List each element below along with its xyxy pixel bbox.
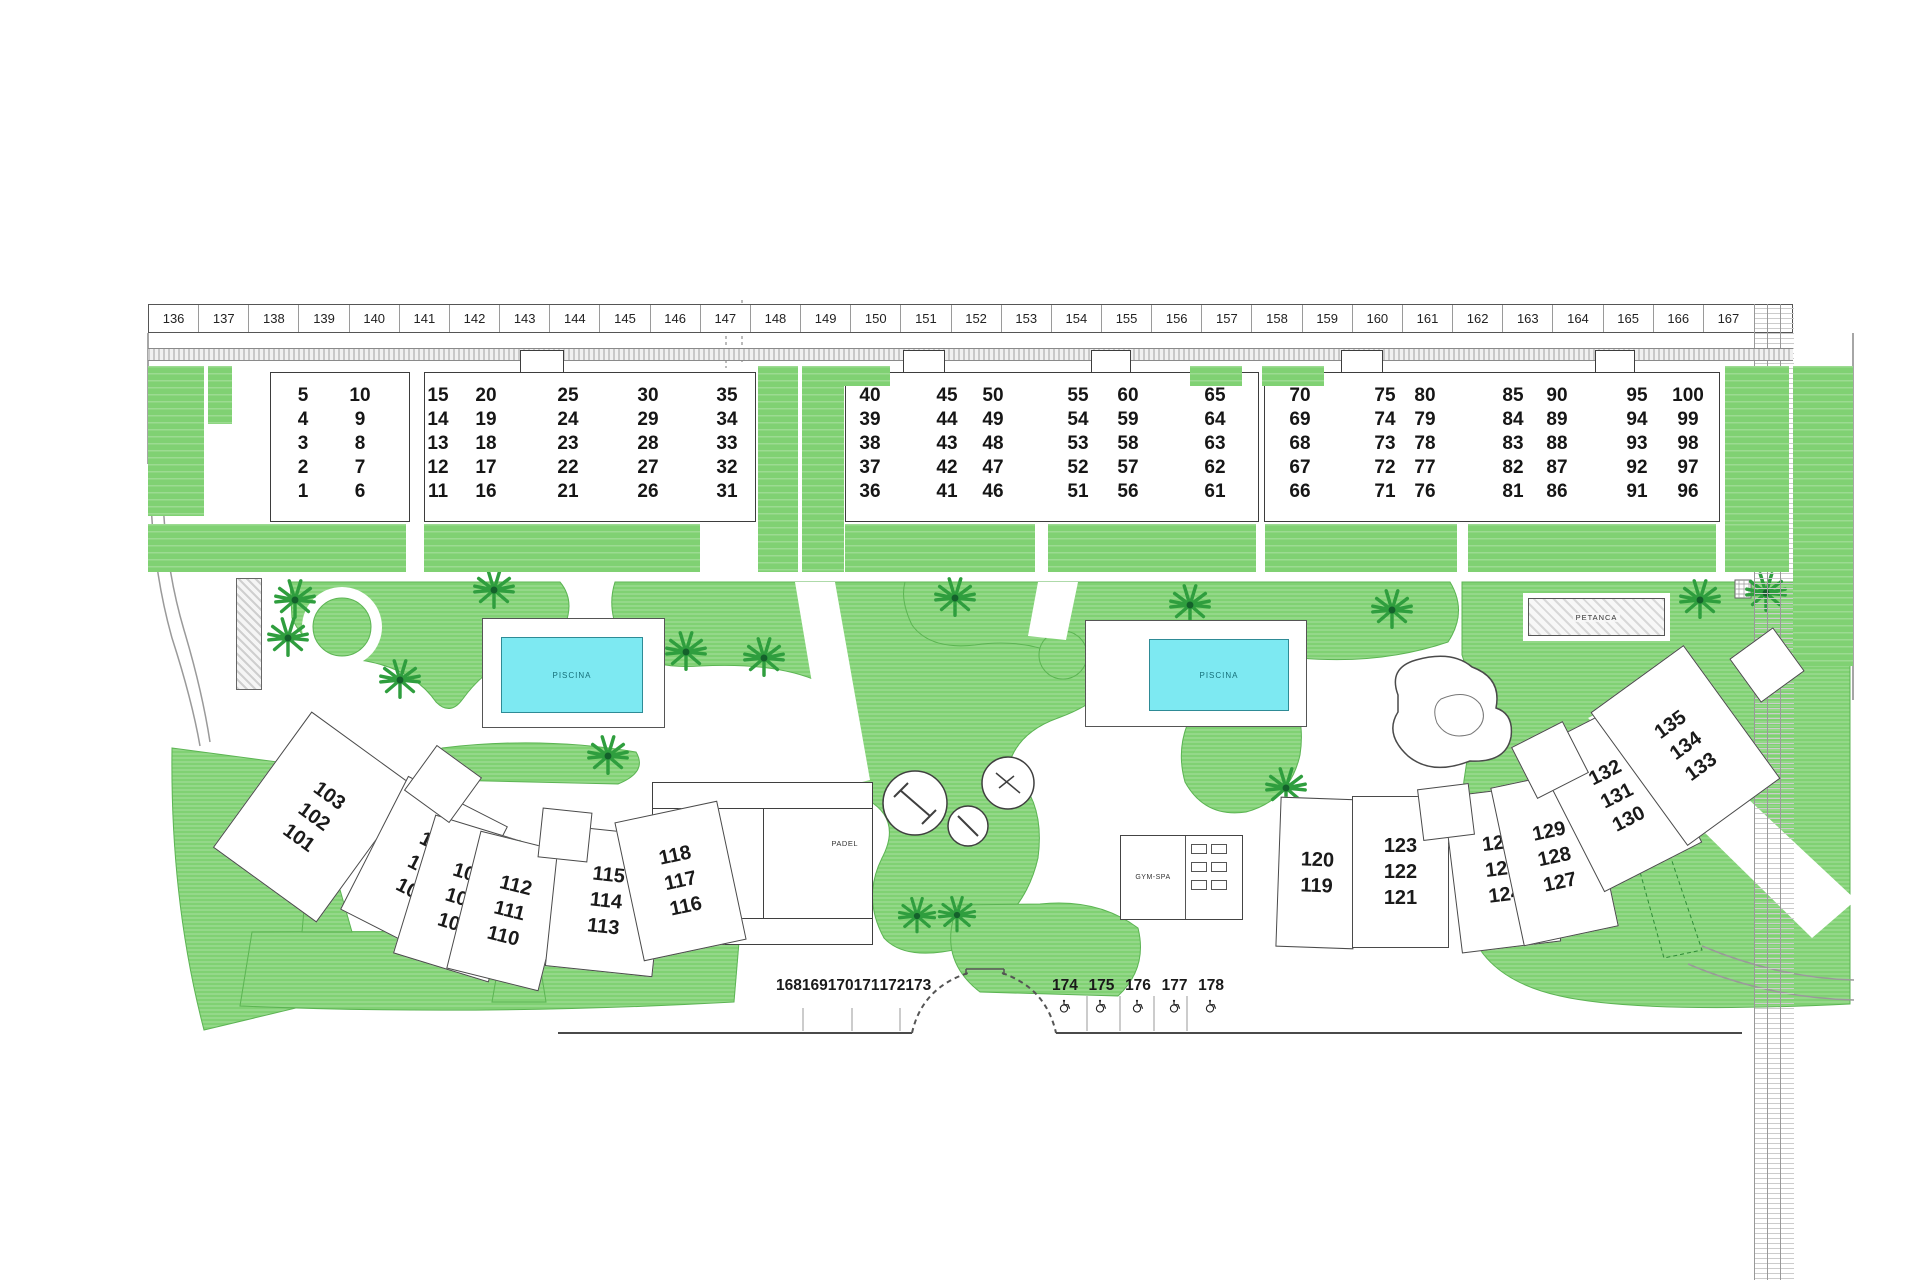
parking-space-number: 176 — [1125, 977, 1151, 995]
parking-space: 165 — [1603, 305, 1653, 332]
unit-numbers: 112 111 110 — [484, 869, 534, 952]
parking-space: 139 — [298, 305, 348, 332]
wall-divider — [1185, 836, 1186, 919]
gym-spa-building: GYM-SPA — [1120, 835, 1243, 920]
parking-space-number: 177 — [1162, 977, 1188, 995]
pool-deck-west: PISCINA — [482, 618, 665, 728]
ramp — [236, 578, 262, 690]
pool-east: PISCINA — [1149, 639, 1289, 711]
parking-space: 161 — [1402, 305, 1452, 332]
green-strip — [208, 366, 232, 424]
unit-stack-81-85: 85 84 83 82 81 — [1493, 384, 1533, 504]
wheelchair-icon — [1169, 999, 1181, 1013]
parking-space: 152 — [951, 305, 1001, 332]
unit-numbers: 118 117 116 — [657, 839, 705, 922]
unit-stack-6-10: 10 9 8 7 6 — [340, 384, 380, 504]
parking-space: 148 — [750, 305, 800, 332]
lounger-icon — [1211, 862, 1227, 872]
unit-stack-11-15: 15 14 13 12 11 — [418, 384, 458, 504]
wheelchair-icon — [1132, 999, 1144, 1013]
green-strip — [758, 366, 798, 572]
unit-stack-61-65: 65 64 63 62 61 — [1195, 384, 1235, 504]
parking-space: 136 — [149, 305, 198, 332]
unit-stack-76-80: 80 79 78 77 76 — [1405, 384, 1445, 504]
parking-space: 144 — [549, 305, 599, 332]
green-strip — [844, 366, 890, 386]
lounger-icon — [1211, 880, 1227, 890]
parking-space: 166 — [1653, 305, 1703, 332]
unit-stack-1-5: 5 4 3 2 1 — [283, 384, 323, 504]
parking-space: 146 — [650, 305, 700, 332]
accessible-parking-space: 177 — [1162, 977, 1188, 1013]
gravel-band — [148, 348, 1793, 361]
parking-space: 171 — [854, 977, 880, 995]
unit-stack-46-50: 50 49 48 47 46 — [973, 384, 1013, 504]
lounger-icon — [1191, 862, 1207, 872]
parking-space-number: 178 — [1198, 977, 1224, 995]
parking-space: 159 — [1302, 305, 1352, 332]
accessible-parking-space: 174 — [1052, 977, 1078, 1013]
unit-numbers: 123 122 121 — [1384, 833, 1417, 911]
green-strip — [424, 524, 700, 572]
petanca-court: PETANCA — [1528, 598, 1665, 636]
unit-stack-66-70: 70 69 68 67 66 — [1280, 384, 1320, 504]
parking-space: 170 — [828, 977, 854, 995]
parking-space: 143 — [499, 305, 549, 332]
parking-space: 162 — [1452, 305, 1502, 332]
unit-stack-31-35: 35 34 33 32 31 — [707, 384, 747, 504]
parking-space: 150 — [850, 305, 900, 332]
parking-space: 173 — [905, 977, 931, 995]
lounger-icon — [1191, 844, 1207, 854]
green-strip — [1793, 366, 1853, 666]
unit-stack-16-20: 20 19 18 17 16 — [466, 384, 506, 504]
parking-space: 156 — [1151, 305, 1201, 332]
parking-space: 151 — [900, 305, 950, 332]
pool-label: PISCINA — [552, 671, 591, 680]
building-119-120: 120 119 — [1275, 797, 1358, 950]
accessible-parking-space: 175 — [1089, 977, 1115, 1013]
parking-space: 141 — [399, 305, 449, 332]
green-strip — [148, 524, 406, 572]
parking-space: 155 — [1101, 305, 1151, 332]
parking-space: 140 — [349, 305, 399, 332]
wheelchair-icon — [1205, 999, 1217, 1013]
unit-numbers: 120 119 — [1299, 846, 1334, 899]
green-strip — [1468, 524, 1716, 572]
palm-tree-icon — [475, 571, 513, 607]
parking-space: 158 — [1251, 305, 1301, 332]
parking-space: 142 — [449, 305, 499, 332]
unit-numbers: 115 114 113 — [586, 861, 626, 942]
pool-deck-east: PISCINA — [1085, 620, 1307, 727]
green-strip — [802, 366, 844, 572]
unit-stack-91-95: 95 94 93 92 91 — [1617, 384, 1657, 504]
court-line — [763, 808, 764, 919]
parking-space-number: 175 — [1089, 977, 1115, 995]
pool-label: PISCINA — [1199, 671, 1238, 680]
garden-layer — [0, 0, 1920, 1280]
wheelchair-icon — [1059, 999, 1071, 1013]
parking-space: 149 — [800, 305, 850, 332]
parking-space: 145 — [599, 305, 649, 332]
accessible-parking-space: 178 — [1198, 977, 1224, 1013]
palm-tree-icon — [589, 737, 627, 773]
parking-space: 160 — [1352, 305, 1402, 332]
unit-stack-36-40: 40 39 38 37 36 — [850, 384, 890, 504]
annex — [1417, 783, 1475, 841]
parking-space: 169 — [802, 977, 828, 995]
unit-stack-96-100: 100 99 98 97 96 — [1668, 384, 1708, 504]
lounger-icon — [1211, 844, 1227, 854]
parking-space: 147 — [700, 305, 750, 332]
gym-label: GYM-SPA — [1121, 874, 1185, 881]
unit-stack-26-30: 30 29 28 27 26 — [628, 384, 668, 504]
green-strip — [1265, 524, 1457, 572]
wheelchair-icon — [1095, 999, 1107, 1013]
green-strip — [148, 366, 204, 516]
parking-space: 172 — [880, 977, 906, 995]
green-strip — [1262, 366, 1324, 386]
parking-space: 164 — [1552, 305, 1602, 332]
parking-space: 157 — [1201, 305, 1251, 332]
parking-space: 154 — [1051, 305, 1101, 332]
parking-space: 167 — [1703, 305, 1753, 332]
green-strip — [1048, 524, 1256, 572]
accessible-parking-space: 176 — [1125, 977, 1151, 1013]
unit-stack-86-90: 90 89 88 87 86 — [1537, 384, 1577, 504]
parking-space: 168 — [776, 977, 802, 995]
unit-stack-21-25: 25 24 23 22 21 — [548, 384, 588, 504]
parking-space: 138 — [248, 305, 298, 332]
petanca-label: PETANCA — [1573, 613, 1621, 622]
parking-space: 163 — [1502, 305, 1552, 332]
green-strip — [1190, 366, 1242, 386]
parking-row-174-178: 174 175 176 177 — [1052, 977, 1224, 1013]
unit-stack-41-45: 45 44 43 42 41 — [927, 384, 967, 504]
unit-stack-51-55: 55 54 53 52 51 — [1058, 384, 1098, 504]
lounger-icon — [1191, 880, 1207, 890]
unit-stack-71-75: 75 74 73 72 71 — [1365, 384, 1405, 504]
parking-space: 153 — [1001, 305, 1051, 332]
parking-space: 137 — [198, 305, 248, 332]
pool-west: PISCINA — [501, 637, 643, 713]
parking-row-168-173: 168169170171172173 — [776, 977, 924, 995]
parking-space-number: 174 — [1052, 977, 1078, 995]
unit-stack-56-60: 60 59 58 57 56 — [1108, 384, 1148, 504]
unit-numbers: 135 134 133 — [1649, 704, 1722, 787]
site-plan: 1361371381391401411421431441451461471481… — [0, 0, 1920, 1280]
unit-numbers: 103 102 101 — [278, 776, 351, 859]
padel-label: PADEL — [831, 839, 858, 848]
annex — [538, 808, 593, 863]
green-strip — [845, 524, 1035, 572]
parking-row-top: 1361371381391401411421431441451461471481… — [148, 304, 1793, 333]
green-strip — [1725, 524, 1789, 572]
